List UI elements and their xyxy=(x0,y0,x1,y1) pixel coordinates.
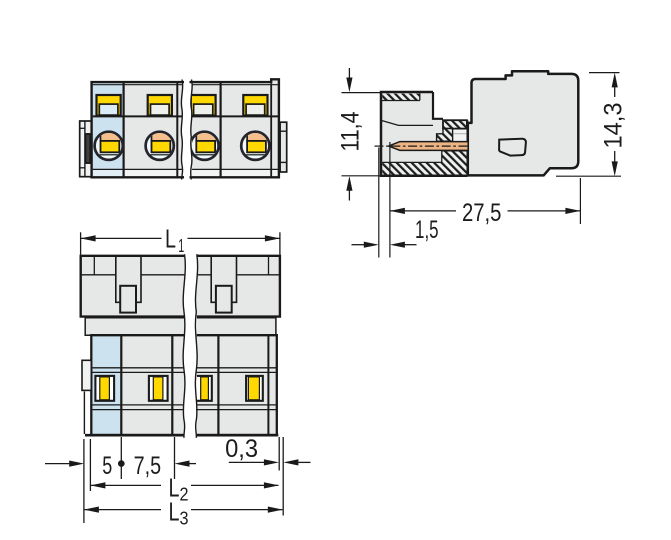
svg-text:3: 3 xyxy=(180,509,189,529)
svg-text:1,5: 1,5 xyxy=(415,216,439,244)
svg-text:0,3: 0,3 xyxy=(225,435,258,463)
svg-text:L: L xyxy=(169,497,180,527)
svg-text:11,4: 11,4 xyxy=(337,111,365,151)
svg-text:2: 2 xyxy=(180,484,189,504)
svg-text:L: L xyxy=(165,224,176,254)
svg-text:7,5: 7,5 xyxy=(134,452,162,480)
svg-text:14,3: 14,3 xyxy=(600,103,628,149)
svg-text:5: 5 xyxy=(102,452,112,480)
svg-text:1: 1 xyxy=(178,236,184,256)
svg-text:27,5: 27,5 xyxy=(462,199,502,227)
